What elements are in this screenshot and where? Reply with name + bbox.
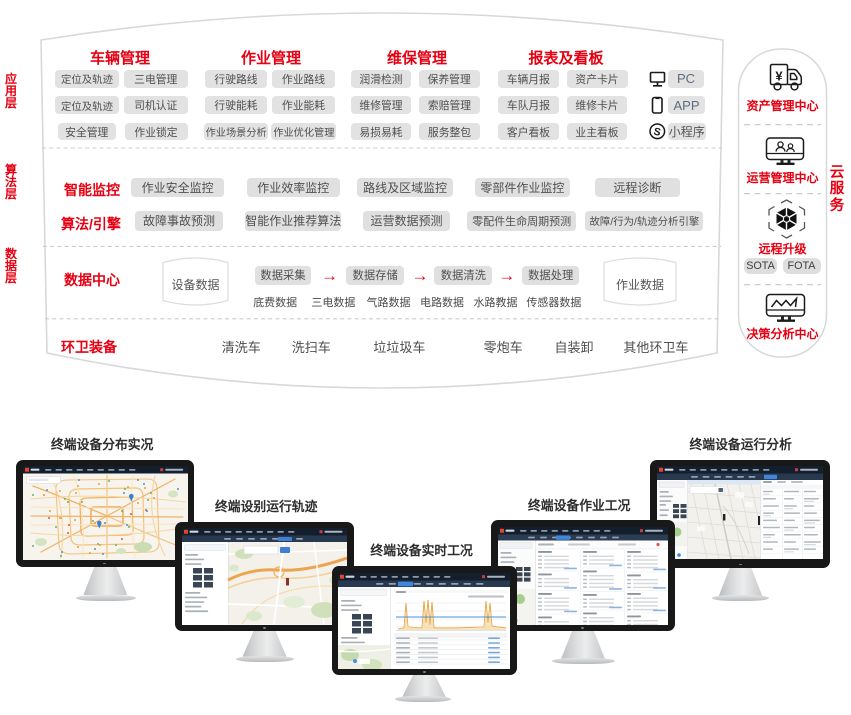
svg-text:¥: ¥ — [775, 69, 783, 84]
